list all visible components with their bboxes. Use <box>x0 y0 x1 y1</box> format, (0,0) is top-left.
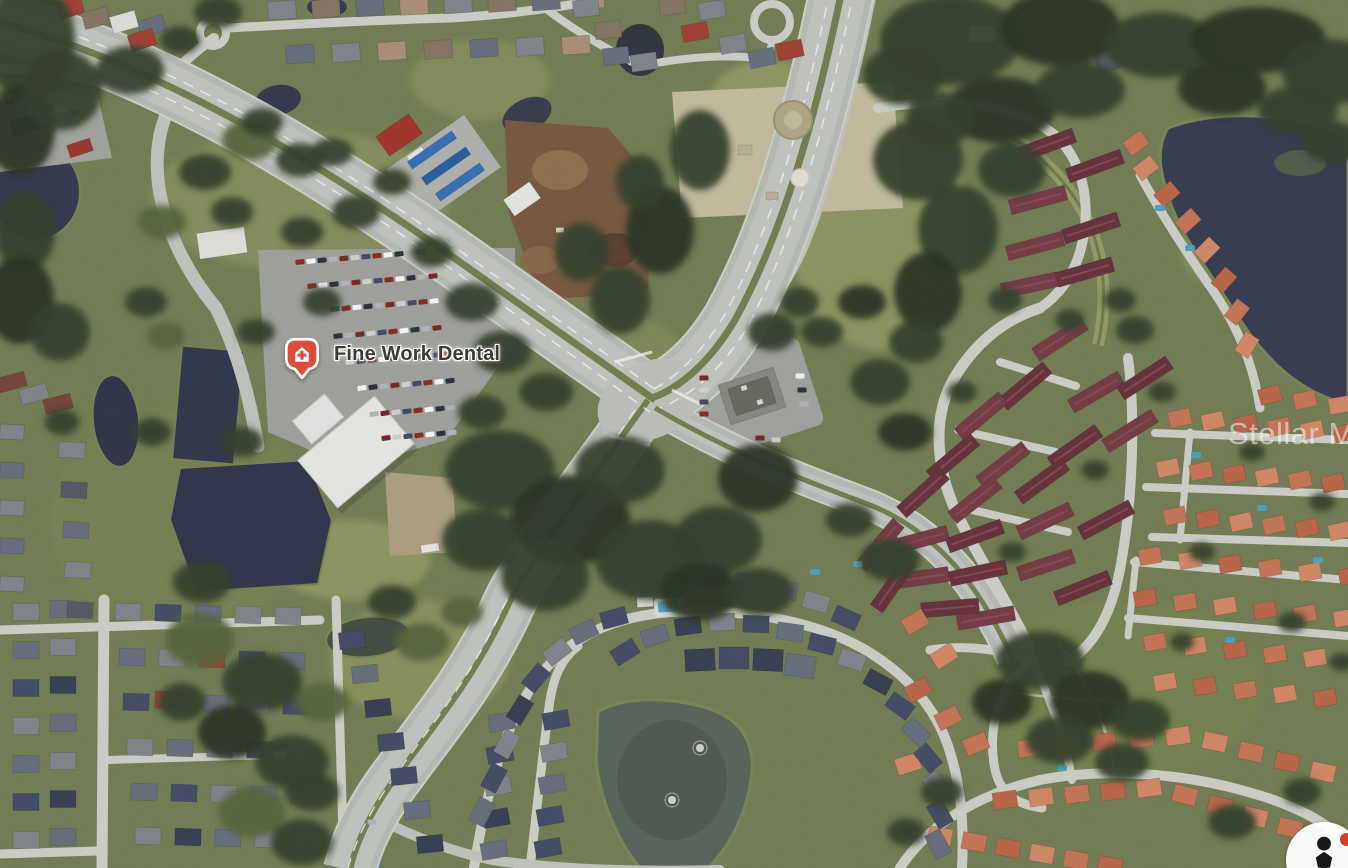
imagery-grain <box>0 0 1348 868</box>
pegman-person-icon <box>1304 834 1344 868</box>
aerial-imagery <box>0 0 1348 868</box>
watermark: Stellar MLS <box>1228 416 1348 452</box>
notification-dot <box>1340 833 1348 846</box>
satellite-map-viewport[interactable]: Fine Work Dental Stellar MLS <box>0 0 1348 868</box>
